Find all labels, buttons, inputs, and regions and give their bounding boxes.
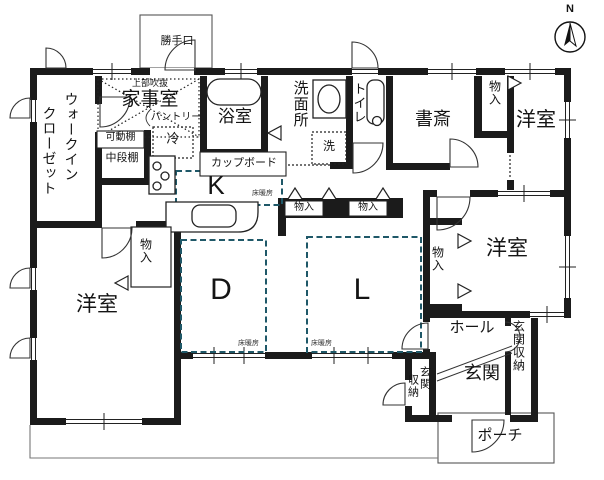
awning-window-left — [10, 268, 30, 288]
label-washer: 洗 — [319, 140, 339, 152]
awning-window-top — [46, 48, 66, 68]
hall-door — [402, 323, 428, 349]
bedroom-door-sw — [102, 228, 132, 258]
label-storage-top: 物入 — [488, 80, 500, 106]
awning-window-toilet — [352, 42, 378, 68]
label-porch: ポーチ — [472, 428, 528, 444]
label-bathroom: 浴室 — [208, 108, 262, 126]
awning-window-left — [10, 98, 30, 118]
burner — [153, 182, 161, 190]
label-study: 書斎 — [404, 110, 462, 129]
label-washroom: 洗面所 — [292, 80, 308, 128]
closet-door-marker — [115, 276, 128, 290]
compass-icon — [555, 22, 585, 52]
bath-door-marker — [268, 126, 281, 140]
label-storage-e: 物入 — [431, 246, 443, 272]
closet-door-marker — [508, 76, 521, 90]
label-floor-heating-k: 床暖房 — [252, 190, 273, 197]
label-movable-shelf: 可動棚 — [98, 133, 143, 143]
label-open-ceiling: 上部吹抜 — [122, 79, 178, 88]
label-toilet: トイレ — [352, 82, 366, 124]
label-cupboard: カップボード — [202, 158, 286, 169]
label-pantry: パントリー — [145, 113, 207, 123]
label-hall: ホール — [440, 320, 504, 336]
label-living: L — [348, 274, 376, 305]
label-bedroom-ne: 洋室 — [510, 110, 562, 131]
burner — [161, 172, 169, 180]
toilet-handle — [373, 117, 382, 126]
study-door — [450, 139, 478, 167]
eave-line — [30, 425, 438, 458]
label-utility-room: 家事室 — [112, 90, 188, 110]
label-floor-heating-l: 床暖房 — [311, 340, 332, 347]
label-kitchen: K — [204, 172, 228, 199]
floor-plan: 勝手口 上部吹抜 家事室 ウォークイン クローゼット 可動棚 パントリー 冷 中… — [0, 0, 604, 480]
burner — [153, 162, 161, 170]
closet-door-marker — [322, 188, 336, 199]
closet-door-marker — [458, 284, 471, 298]
label-storage-sw: 物入 — [139, 238, 151, 264]
label-entrance-storage-s1: 玄関 — [418, 366, 429, 390]
label-entrance-storage-s2: 収納 — [406, 374, 417, 398]
label-entrance: 玄関 — [456, 364, 508, 383]
label-compass-n: N — [562, 4, 578, 15]
closet-door-marker — [458, 234, 471, 248]
label-bedroom-e: 洋室 — [476, 238, 538, 260]
label-wic-line1: ウォークイン — [64, 92, 79, 182]
bedroom-door — [437, 197, 470, 230]
label-fridge: 冷 — [162, 132, 184, 146]
label-bedroom-sw: 洋室 — [64, 294, 130, 316]
washbasin — [318, 85, 340, 113]
label-wic-line2: クローゼット — [42, 106, 57, 196]
label-middle-shelf: 中段棚 — [97, 153, 147, 164]
closet-door-marker — [288, 188, 302, 199]
label-back-door: 勝手口 — [148, 36, 206, 47]
label-storage-band-1: 物入 — [286, 203, 322, 213]
label-storage-band-2: 物入 — [350, 203, 386, 213]
label-entrance-storage: 玄関収納 — [512, 320, 524, 372]
closet-door-marker — [376, 188, 390, 199]
label-floor-heating-d: 床暖房 — [238, 340, 259, 347]
storage-exterior-door — [383, 383, 405, 405]
label-dining: D — [206, 274, 236, 305]
awning-window-left — [10, 338, 30, 358]
bathtub — [207, 79, 261, 105]
toilet-door — [353, 143, 383, 173]
kitchen-sink — [192, 205, 236, 227]
